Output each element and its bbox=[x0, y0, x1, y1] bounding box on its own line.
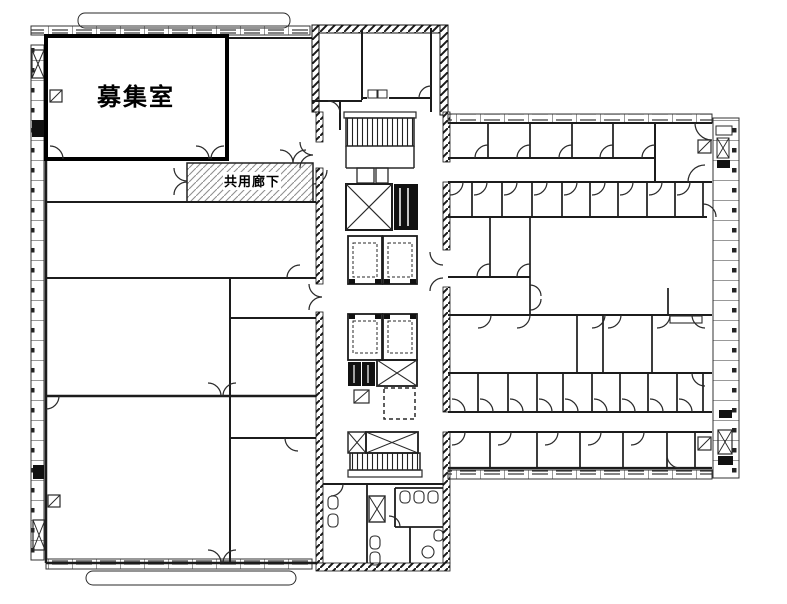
core-bottom-wall bbox=[316, 563, 450, 571]
toilet-area bbox=[323, 484, 443, 565]
shared-corridor-label: 共用廊下 bbox=[224, 174, 280, 189]
elevator-shaft-x-icon bbox=[346, 184, 392, 230]
elevator-car bbox=[348, 236, 382, 284]
left-wing-partition-walls bbox=[46, 202, 322, 563]
pipe-shaft-icon bbox=[698, 437, 711, 450]
dark-machine-boxes bbox=[348, 362, 375, 386]
right-wing bbox=[448, 114, 739, 479]
window-strip-bottom-right bbox=[448, 470, 712, 479]
window-strip-top-right bbox=[448, 114, 712, 123]
dark-duct-shaft bbox=[394, 184, 418, 230]
right-wing-partition-walls bbox=[472, 123, 703, 468]
vacancy-room-label: 募集室 bbox=[96, 83, 175, 111]
scanned-floor-plan: 募集室 共用廊下 bbox=[0, 0, 787, 604]
door-arcs-left-wing bbox=[46, 142, 327, 563]
door-leaf bbox=[368, 90, 377, 98]
pipe-shaft-icon bbox=[48, 495, 60, 507]
duct-shaft-x-icon bbox=[348, 432, 418, 453]
elevator-car bbox=[348, 314, 382, 360]
core-top-wall bbox=[312, 25, 448, 33]
core-right-wall bbox=[443, 112, 450, 563]
core-top-rooms bbox=[312, 28, 431, 130]
lobby-box bbox=[357, 168, 374, 183]
pipe-shaft-icon bbox=[698, 140, 711, 153]
elevator-car bbox=[383, 236, 417, 284]
bottom-awning-outline bbox=[86, 571, 296, 585]
core-left-wall bbox=[316, 112, 323, 563]
pipe-shaft-icon bbox=[354, 390, 369, 403]
counter-fixture bbox=[670, 316, 702, 323]
duct-shaft-x-icon bbox=[377, 360, 417, 386]
stair-bottom bbox=[348, 453, 422, 477]
stair-lobby bbox=[346, 146, 414, 168]
window-strip-right-edge bbox=[713, 118, 739, 478]
stair-top bbox=[344, 112, 416, 146]
core-top-right-wall bbox=[440, 25, 448, 115]
floor-plan-drawing: 募集室 共用廊下 bbox=[0, 0, 787, 604]
door-leaf bbox=[378, 90, 387, 98]
elevator-car bbox=[383, 314, 417, 360]
right-wing-main-walls bbox=[448, 123, 712, 432]
lobby-box bbox=[376, 168, 388, 183]
dashed-hoistway bbox=[384, 388, 415, 419]
sink-fixture-icon bbox=[422, 546, 434, 558]
window-strip-top-left bbox=[31, 26, 310, 35]
central-core bbox=[312, 25, 450, 571]
door-arcs-right-wing bbox=[450, 123, 716, 468]
core-top-left-wall bbox=[312, 25, 319, 112]
left-wing: 募集室 共用廊下 bbox=[31, 13, 327, 585]
